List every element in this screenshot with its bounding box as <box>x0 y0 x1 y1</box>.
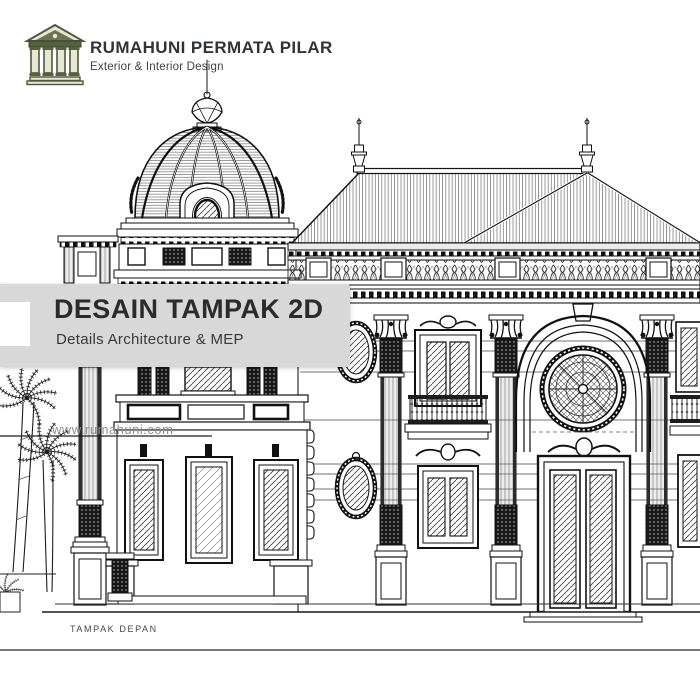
brand-name: RUMAHUNI PERMATA PILAR <box>90 38 333 58</box>
wing-window <box>254 460 298 560</box>
palm-tree <box>0 368 57 572</box>
wing-attic <box>138 367 277 395</box>
header: RUMAHUNI PERMATA PILAR Exterior & Interi… <box>0 0 700 95</box>
main-roof <box>288 118 700 256</box>
shrub <box>0 574 24 612</box>
palm-trees <box>0 368 77 612</box>
title-banner: DESAIN TAMPAK 2D Details Architecture & … <box>0 284 350 367</box>
website-watermark[interactable]: www.rumahuni.com <box>52 422 173 437</box>
wing-window <box>186 457 232 563</box>
banner-subtitle: Details Architecture & MEP <box>56 331 244 348</box>
wing-window <box>125 460 163 560</box>
dentil-band <box>121 237 294 244</box>
parapet-panels <box>128 405 288 419</box>
palm-tree <box>17 422 77 592</box>
crown-finial-icon <box>192 98 222 123</box>
window-bay-upper <box>408 316 488 424</box>
cartouche-icon <box>441 444 455 460</box>
brand-tagline: Exterior & Interior Design <box>90 61 224 73</box>
main-facade <box>294 303 700 622</box>
roof-eave <box>288 243 700 250</box>
banner-left-tab <box>0 302 30 346</box>
porch-cornice <box>58 236 118 283</box>
roof-ridge <box>357 169 590 174</box>
banner-title: DESAIN TAMPAK 2D <box>54 294 323 325</box>
drawing-caption: TAMPAK DEPAN <box>70 624 158 634</box>
classical-temple-icon <box>24 22 86 86</box>
rose-window <box>542 348 624 430</box>
poster-page: { "header": { "brand_name": "RUMAHUNI PE… <box>0 0 700 700</box>
iron-balcony-railing <box>410 398 486 422</box>
keystone-icon <box>573 304 593 321</box>
